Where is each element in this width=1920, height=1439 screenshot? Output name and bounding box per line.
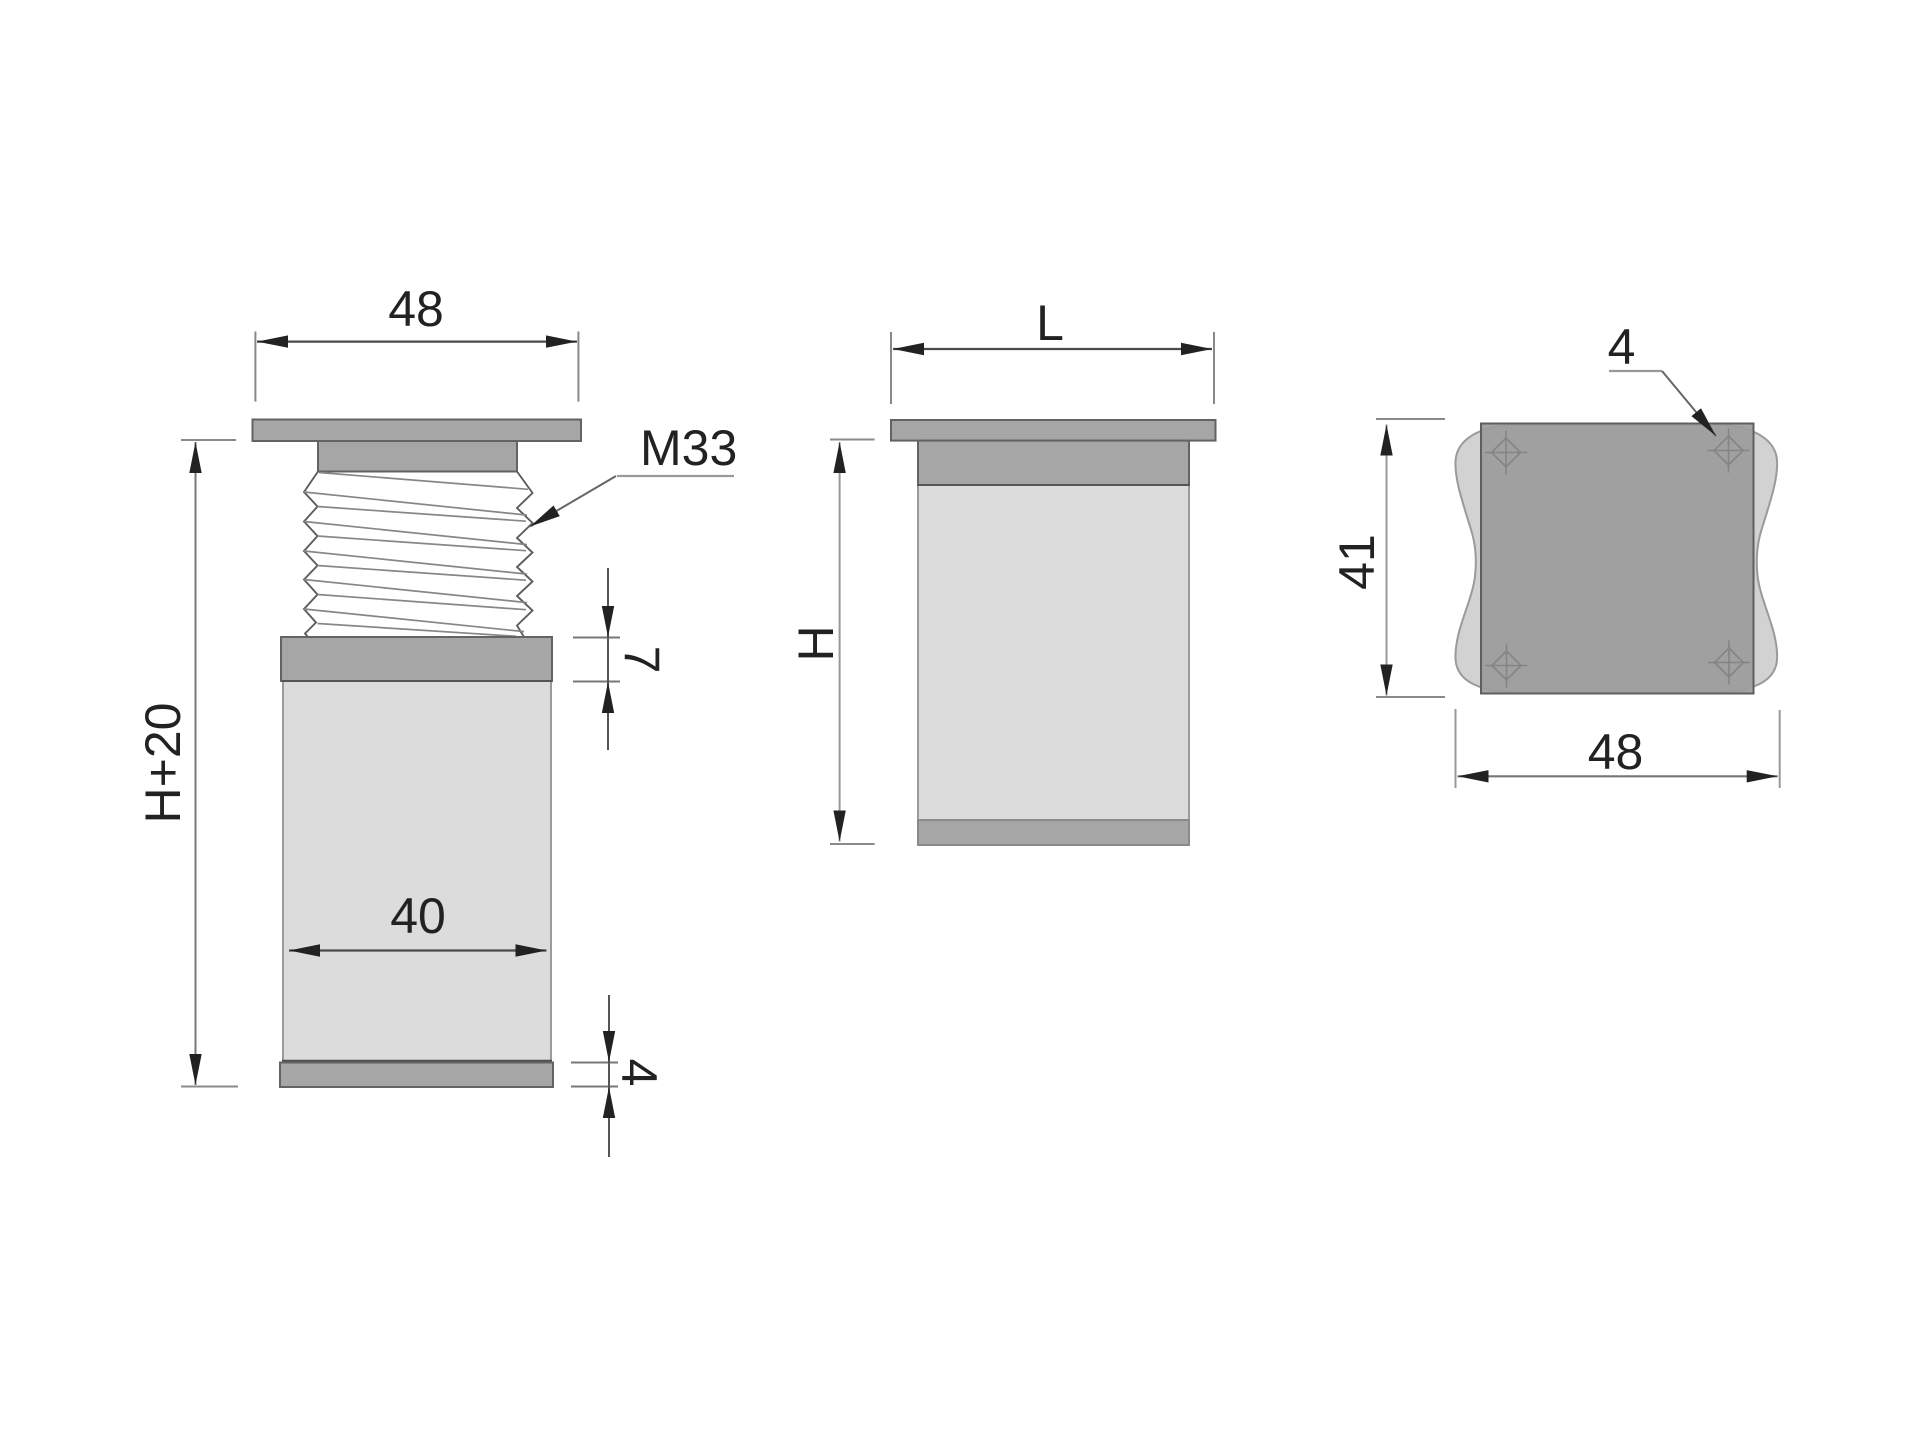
svg-text:L: L: [1036, 295, 1064, 351]
svg-text:48: 48: [388, 281, 444, 337]
svg-text:4: 4: [611, 1059, 667, 1087]
svg-text:H+20: H+20: [135, 703, 191, 824]
svg-text:7: 7: [614, 646, 670, 674]
svg-text:4: 4: [1608, 319, 1636, 375]
svg-text:H: H: [788, 625, 844, 661]
svg-text:40: 40: [390, 888, 446, 944]
svg-text:M33: M33: [640, 420, 737, 476]
svg-text:41: 41: [1329, 534, 1385, 590]
svg-text:48: 48: [1588, 724, 1644, 780]
